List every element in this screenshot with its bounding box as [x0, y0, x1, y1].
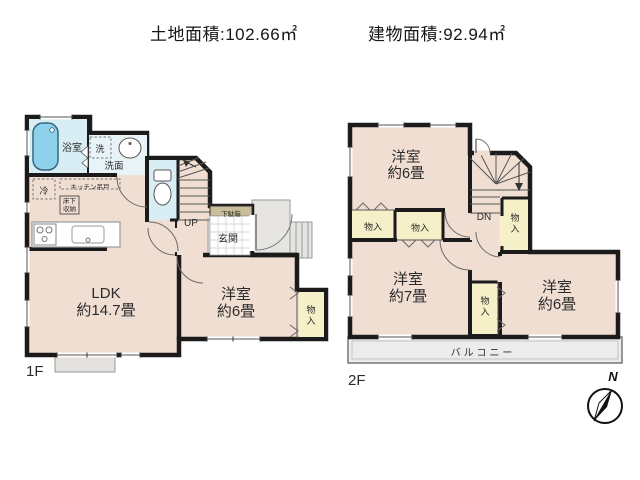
- washer-label: 洗: [95, 142, 104, 155]
- bedroom-2f-right-name: 洋室: [538, 280, 576, 297]
- bedroom-1f-name: 洋室: [217, 287, 255, 304]
- closet-stairs-label: 物入: [509, 213, 521, 234]
- bathroom-label: 浴室: [62, 139, 82, 154]
- terrace-step: [55, 357, 115, 372]
- bedroom-2f-top-size: 約6畳: [387, 167, 424, 183]
- stairs-up-label: UP: [184, 218, 198, 229]
- closet-1f-label: 物入: [305, 305, 317, 326]
- balcony-label: バルコニー: [451, 344, 516, 359]
- bedroom-2f-left-size: 約7畳: [389, 289, 427, 306]
- ldk-name: LDK: [76, 286, 135, 303]
- kitchen-sink: [72, 226, 104, 243]
- entrance-porch: [252, 200, 290, 258]
- closet-bottom-label: 物入: [479, 296, 491, 317]
- compass-icon: [588, 389, 622, 423]
- closet-left-label: 物入: [364, 220, 382, 233]
- closet-mid-label: 物入: [411, 221, 429, 234]
- bedroom-2f-left-name: 洋室: [389, 272, 427, 289]
- porch-steps: [290, 222, 312, 258]
- fridge-label: 冷: [39, 184, 48, 197]
- ldk-label: LDK 約14.7畳: [76, 286, 135, 319]
- entrance-label: 玄関: [218, 230, 238, 245]
- compass-north-label: N: [608, 369, 617, 384]
- toilet-tank: [154, 170, 171, 181]
- bedroom-1f-label: 洋室 約6畳: [217, 287, 255, 320]
- bedroom-1f-size: 約6畳: [217, 304, 255, 321]
- bedroom-2f-top-name: 洋室: [387, 151, 424, 167]
- floor1-label: 1F: [26, 363, 44, 380]
- floor-plan-graphics: [0, 0, 640, 480]
- floor-plan-page: { "header": { "land_area": "土地面積:102.66㎡…: [0, 0, 640, 480]
- land-area-text: 土地面積:102.66㎡: [150, 20, 298, 45]
- floor2-label: 2F: [348, 372, 366, 389]
- toilet-bowl: [154, 183, 171, 205]
- building-area-text: 建物面積:92.94㎡: [368, 20, 506, 45]
- bedroom-2f-top-label: 洋室 約6畳: [387, 151, 424, 182]
- kitchen-cabinet-label: キッチン吊戸: [71, 181, 110, 191]
- bedroom-2f-left-label: 洋室 約7畳: [389, 272, 427, 305]
- bedroom-2f-right-size: 約6畳: [538, 297, 576, 314]
- ldk-size: 約14.7畳: [76, 303, 135, 320]
- washroom-label: 洗面: [104, 158, 123, 172]
- bedroom-2f-right-label: 洋室 約6畳: [538, 280, 576, 313]
- stairs-dn-label: DN: [477, 212, 491, 223]
- wash-basin: [119, 138, 141, 158]
- shoe-box-label: 下駄箱: [221, 208, 241, 218]
- underfloor-storage-label: 床下収納: [62, 198, 77, 214]
